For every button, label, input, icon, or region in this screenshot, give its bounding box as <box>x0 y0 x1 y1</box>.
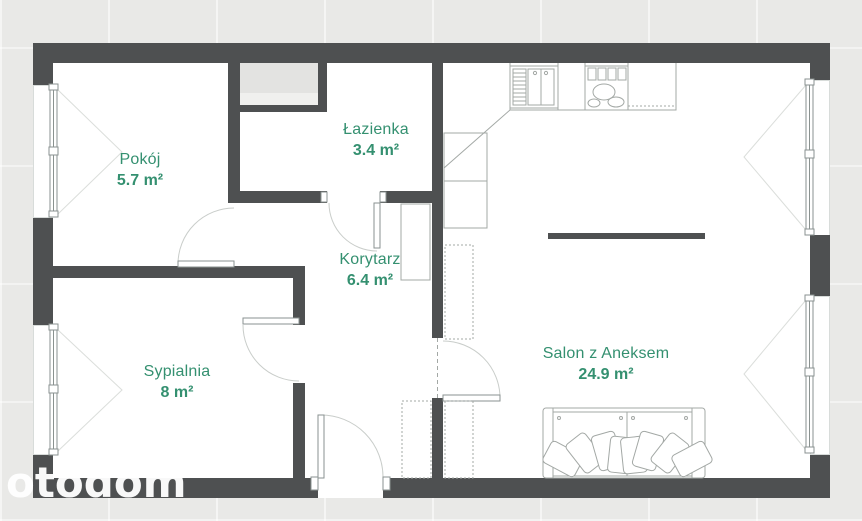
room-label-sypialnia: Sypialnia 8 m² <box>97 361 257 403</box>
wall <box>228 63 240 203</box>
wall <box>293 383 305 478</box>
room-name: Pokój <box>60 149 220 170</box>
room-name: Salon z Aneksem <box>506 343 706 364</box>
wall <box>228 191 327 203</box>
room-area: 8 m² <box>97 382 257 403</box>
room-name: Sypialnia <box>97 361 257 382</box>
room-label-salon: Salon z Aneksem 24.9 m² <box>506 343 706 385</box>
room-label-pokoj: Pokój 5.7 m² <box>60 149 220 191</box>
room-label-korytarz: Korytarz 6.4 m² <box>290 249 450 291</box>
room-label-lazienka: Łazienka 3.4 m² <box>296 119 456 161</box>
room-area: 5.7 m² <box>60 170 220 191</box>
room-area: 24.9 m² <box>506 364 706 385</box>
wall <box>33 43 830 63</box>
wall <box>432 63 443 338</box>
wall <box>240 105 327 112</box>
room-name: Korytarz <box>290 249 450 270</box>
window-sill <box>33 325 53 455</box>
entrance-opening <box>318 478 383 498</box>
wall <box>33 218 53 325</box>
room-area: 6.4 m² <box>290 270 450 291</box>
room-area: 3.4 m² <box>296 140 456 161</box>
otodom-watermark: otodom <box>6 458 186 507</box>
wall <box>810 235 830 296</box>
room-name: Łazienka <box>296 119 456 140</box>
window-sill <box>33 85 53 218</box>
wall <box>380 191 432 203</box>
wall <box>383 478 830 498</box>
window-sill <box>810 296 830 455</box>
wall <box>810 63 830 80</box>
wall <box>33 63 53 85</box>
wall <box>810 455 830 478</box>
wall <box>432 398 443 478</box>
floorplan: Pokój 5.7 m² Łazienka 3.4 m² Korytarz 6.… <box>0 0 862 521</box>
window-sill <box>810 80 830 236</box>
shaft-strip <box>240 93 318 105</box>
wall <box>53 266 305 278</box>
